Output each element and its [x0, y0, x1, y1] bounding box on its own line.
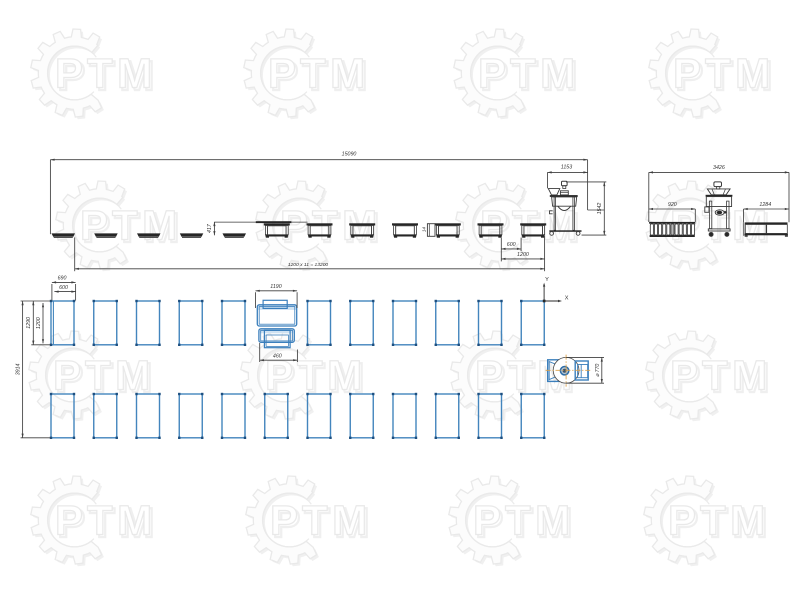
- svg-text:15090: 15090: [342, 151, 357, 157]
- svg-text:1290: 1290: [26, 317, 32, 329]
- svg-text:1153: 1153: [561, 165, 572, 171]
- svg-text:1200 х 11 = 13200: 1200 х 11 = 13200: [288, 262, 329, 268]
- svg-text:Y: Y: [545, 277, 549, 283]
- svg-text:920: 920: [668, 202, 677, 208]
- svg-text:3914: 3914: [16, 363, 22, 375]
- svg-text:3426: 3426: [713, 165, 725, 171]
- svg-text:600: 600: [507, 242, 516, 248]
- svg-text:X: X: [565, 296, 569, 302]
- svg-text:14: 14: [421, 227, 426, 233]
- svg-text:1190: 1190: [270, 284, 281, 290]
- svg-text:⌀ 770: ⌀ 770: [595, 364, 601, 377]
- svg-text:460: 460: [273, 354, 282, 360]
- svg-text:600: 600: [59, 285, 68, 291]
- svg-text:1284: 1284: [759, 202, 771, 208]
- svg-text:690: 690: [58, 276, 67, 282]
- svg-text:1542: 1542: [597, 203, 603, 215]
- svg-text:1200: 1200: [517, 252, 529, 258]
- svg-text:1200: 1200: [36, 317, 42, 329]
- svg-text:417: 417: [207, 223, 213, 233]
